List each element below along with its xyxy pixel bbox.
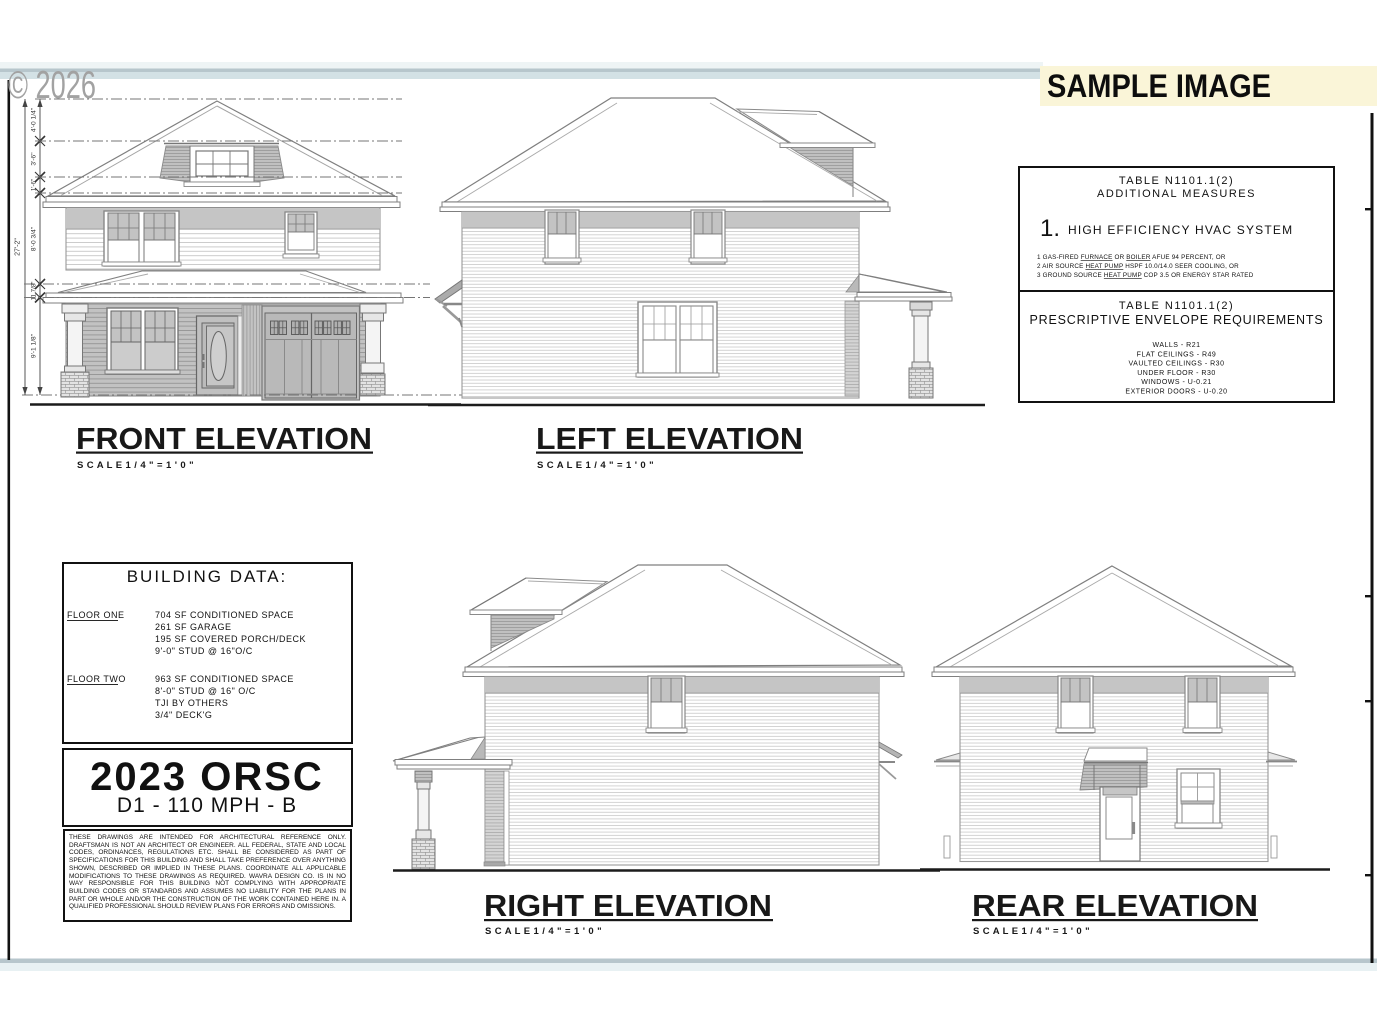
svg-text:3/4" DECK'G: 3/4" DECK'G xyxy=(155,710,212,720)
svg-text:8'-0 3/4": 8'-0 3/4" xyxy=(31,226,38,251)
svg-text:963 SF CONDITIONED SPACE: 963 SF CONDITIONED SPACE xyxy=(155,674,294,684)
svg-text:FLOOR TWO: FLOOR TWO xyxy=(67,674,126,684)
svg-text:FRONT ELEVATION: FRONT ELEVATION xyxy=(76,421,372,456)
svg-text:© 2026: © 2026 xyxy=(8,64,96,107)
svg-text:2023 ORSC: 2023 ORSC xyxy=(90,755,324,799)
svg-text:SAMPLE IMAGE: SAMPLE IMAGE xyxy=(1047,68,1271,104)
svg-text:VAULTED CEILINGS - R30: VAULTED CEILINGS - R30 xyxy=(1129,361,1225,368)
svg-text:4'-0 1/4": 4'-0 1/4" xyxy=(31,107,38,132)
svg-text:S C A L E 1 / 4 " = 1 ' 0 ": S C A L E 1 / 4 " = 1 ' 0 " xyxy=(973,926,1090,937)
svg-text:WINDOWS - U-0.21: WINDOWS - U-0.21 xyxy=(1141,379,1212,386)
svg-text:S C A L E 1 / 4 " = 1 ' 0 ": S C A L E 1 / 4 " = 1 ' 0 " xyxy=(537,460,654,471)
svg-text:S C A L E 1 / 4 " = 1 ' 0 ": S C A L E 1 / 4 " = 1 ' 0 " xyxy=(77,460,194,471)
svg-text:1 GAS-FIRED FURNACE OR BOILER: 1 GAS-FIRED FURNACE OR BOILER AFUE 94 PE… xyxy=(1037,254,1226,261)
svg-text:9'-1 1/8": 9'-1 1/8" xyxy=(31,333,38,358)
svg-text:8'-0" STUD @ 16" O/C: 8'-0" STUD @ 16" O/C xyxy=(155,686,256,696)
svg-text:PRESCRIPTIVE ENVELOPE REQUIREM: PRESCRIPTIVE ENVELOPE REQUIREMENTS xyxy=(1030,313,1324,327)
svg-text:FLOOR ONE: FLOOR ONE xyxy=(67,610,125,620)
svg-text:FLAT CEILINGS - R49: FLAT CEILINGS - R49 xyxy=(1137,351,1217,358)
svg-text:1'-6": 1'-6" xyxy=(31,179,38,191)
svg-text:BUILDING DATA:: BUILDING DATA: xyxy=(127,567,288,586)
svg-text:704 SF CONDITIONED SPACE: 704 SF CONDITIONED SPACE xyxy=(155,610,294,620)
svg-text:TJI BY OTHERS: TJI BY OTHERS xyxy=(155,698,228,708)
svg-text:3'-6": 3'-6" xyxy=(31,152,38,166)
svg-text:WALLS - R21: WALLS - R21 xyxy=(1152,342,1200,349)
svg-text:195 SF COVERED PORCH/DECK: 195 SF COVERED PORCH/DECK xyxy=(155,634,306,644)
svg-text:RIGHT ELEVATION: RIGHT ELEVATION xyxy=(484,888,772,923)
svg-text:3 GROUND SOURCE HEAT PUMP COP: 3 GROUND SOURCE HEAT PUMP COP 3.5 OR ENE… xyxy=(1037,272,1254,279)
svg-text:27'-2": 27'-2" xyxy=(15,238,22,256)
svg-text:2 AIR SOURCE HEAT PUMP HSPF 10: 2 AIR SOURCE HEAT PUMP HSPF 10.0/14.0 SE… xyxy=(1037,263,1239,270)
svg-text:EXTERIOR DOORS - U-0.20: EXTERIOR DOORS - U-0.20 xyxy=(1125,389,1227,396)
svg-text:REAR ELEVATION: REAR ELEVATION xyxy=(972,888,1258,923)
svg-text:9'-0" STUD @ 16"O/C: 9'-0" STUD @ 16"O/C xyxy=(155,646,253,656)
svg-text:D1 - 110 MPH - B: D1 - 110 MPH - B xyxy=(117,794,297,817)
svg-text:TABLE N1101.1(2): TABLE N1101.1(2) xyxy=(1119,175,1234,187)
svg-text:S C A L E 1 / 4 " = 1 ' 0 ": S C A L E 1 / 4 " = 1 ' 0 " xyxy=(485,926,602,937)
svg-text:TABLE N1101.1(2): TABLE N1101.1(2) xyxy=(1119,300,1234,312)
svg-text:HIGH EFFICIENCY HVAC SYSTEM: HIGH EFFICIENCY HVAC SYSTEM xyxy=(1068,223,1293,237)
svg-text:1.: 1. xyxy=(1040,215,1060,242)
svg-text:261 SF GARAGE: 261 SF GARAGE xyxy=(155,622,232,632)
svg-text:LEFT ELEVATION: LEFT ELEVATION xyxy=(536,421,803,456)
svg-text:UNDER FLOOR - R30: UNDER FLOOR - R30 xyxy=(1137,370,1216,377)
svg-text:ADDITIONAL MEASURES: ADDITIONAL MEASURES xyxy=(1097,188,1256,200)
